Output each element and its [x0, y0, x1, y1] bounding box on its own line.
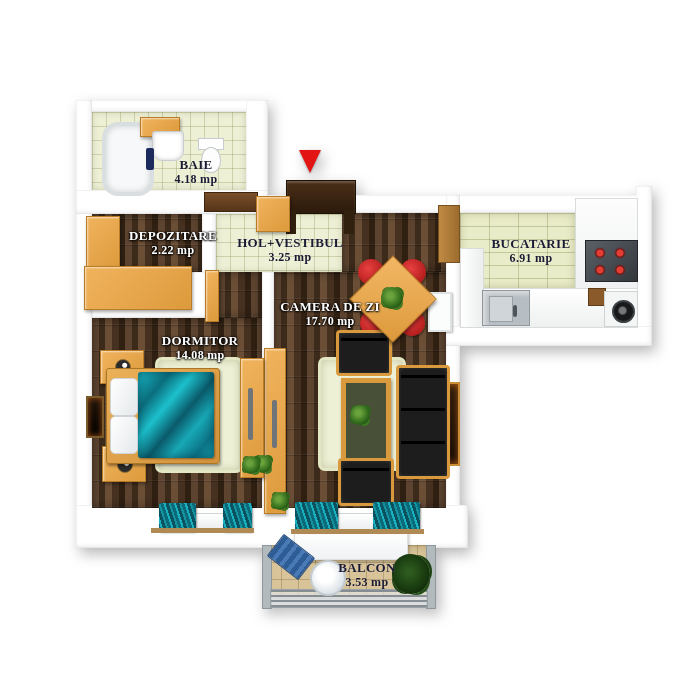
hall-shoe-cabinet [256, 196, 290, 232]
wall-kitchen-bottom [446, 326, 652, 346]
room-name: CAMERA DE ZI [260, 300, 400, 315]
living-window-curtain-left [295, 502, 338, 532]
room-label-bucatarie: BUCATARIE 6.91 mp [461, 237, 601, 265]
wall-outer-left [76, 100, 92, 548]
pillow [110, 416, 138, 454]
bedroom-plant [242, 456, 260, 474]
entrance-door [286, 180, 356, 214]
room-area: 3.53 mp [297, 576, 437, 589]
sofa-cushions [401, 370, 445, 474]
wall-bath-top [76, 100, 268, 112]
sink-basin [489, 296, 513, 322]
room-area: 3.25 mp [220, 251, 360, 264]
room-name: HOL+VESTIBUL [220, 236, 360, 251]
living-window-sill-strip [291, 529, 424, 534]
tv-cabinet-handle [272, 400, 277, 448]
washer-drum [612, 300, 635, 323]
wall-kitchen-right [636, 186, 652, 346]
kitchen-door-open [438, 205, 460, 263]
sofa [396, 365, 450, 479]
floorplan-canvas: BAIE 4.18 mp DEPOZITARE 2.22 mp HOL+VEST… [0, 0, 700, 700]
room-area: 6.91 mp [461, 252, 601, 265]
room-name: BUCATARIE [461, 237, 601, 252]
bath-door-open [204, 192, 258, 212]
room-area: 17.70 mp [260, 315, 400, 328]
room-label-dormitor: DORMITOR 14.08 mp [130, 334, 270, 362]
room-area: 14.08 mp [130, 349, 270, 362]
living-window-curtain-right [373, 502, 420, 532]
coffee-table-plant [350, 405, 370, 425]
livingroom-plant-2 [271, 492, 289, 510]
bedroom-door-open [205, 270, 219, 322]
pillow [110, 378, 138, 416]
room-area: 4.18 mp [126, 173, 266, 186]
wardrobe-handle [248, 388, 253, 440]
room-label-hol: HOL+VESTIBUL 3.25 mp [220, 236, 360, 264]
kitchen-sink [482, 290, 530, 326]
room-label-baie: BAIE 4.18 mp [126, 158, 266, 186]
room-name: BAIE [126, 158, 266, 173]
storage-dresser [84, 266, 192, 310]
room-name: DORMITOR [130, 334, 270, 349]
room-label-balcon: BALCON 3.53 mp [297, 561, 437, 589]
armchair-bottom [338, 458, 394, 506]
sink-faucet [513, 305, 517, 317]
entrance-door-post-right [344, 210, 354, 234]
bed-blanket [138, 372, 214, 458]
room-label-camera-de-zi: CAMERA DE ZI 17.70 mp [260, 300, 400, 328]
armchair-cushion [341, 335, 387, 371]
doorway-hall-bedroom [218, 272, 262, 318]
room-name: BALCON [297, 561, 437, 576]
armchair-top [336, 330, 392, 376]
entrance-arrow-icon [299, 150, 321, 173]
floorplan: BAIE 4.18 mp DEPOZITARE 2.22 mp HOL+VEST… [0, 0, 700, 700]
armchair-cushion [343, 463, 389, 501]
bedroom-window-sill-strip [151, 528, 254, 533]
bedroom-wall-picture [86, 396, 104, 438]
washing-machine [604, 291, 638, 327]
